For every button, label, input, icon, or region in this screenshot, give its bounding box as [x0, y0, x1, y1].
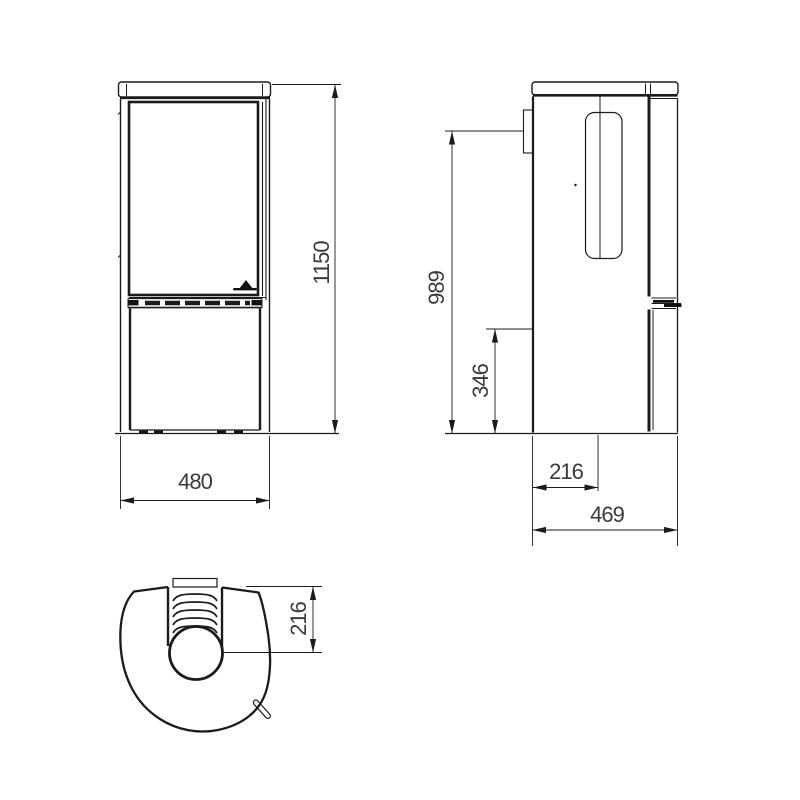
front-top-plate [119, 82, 271, 97]
side-dot-mark [574, 184, 576, 186]
dim-label-front-width: 480 [178, 469, 212, 494]
top-view [120, 579, 271, 732]
front-air-grille [128, 299, 262, 308]
side-flue-stub [524, 110, 534, 153]
arrowhead-left [121, 497, 135, 503]
grille-left-block [129, 300, 139, 305]
dim-label-side-flue-height: 989 [424, 270, 449, 304]
side-top-plate [532, 82, 678, 95]
side-top-plate-ticks [646, 84, 651, 95]
brand-logo-icon [233, 280, 257, 290]
dim-label-side-mid-height: 346 [468, 363, 493, 397]
grille-right-block [252, 300, 262, 305]
arrowhead-down [332, 420, 338, 434]
dim-front-height: 1150 [272, 85, 341, 434]
front-view [115, 82, 339, 434]
dim-side-mid-height: 346 [468, 329, 533, 434]
front-top-plate-ticks [127, 84, 263, 96]
top-flue-collar [170, 627, 223, 680]
dim-label-side-flue-offset: 216 [549, 459, 583, 484]
arrowhead-right [256, 497, 270, 503]
arrowhead-down [449, 420, 455, 434]
side-inset-panel [586, 113, 623, 259]
arrowhead-up [492, 329, 498, 343]
arrowhead-up [332, 85, 338, 99]
dim-top-flue-offset: 216 [224, 587, 322, 653]
dim-side-depth: 469 [533, 436, 678, 546]
arrowhead-right [585, 484, 599, 490]
arrowhead-down [310, 639, 316, 653]
dim-side-flue-offset: 216 [533, 435, 598, 491]
arrowhead-right [664, 527, 678, 533]
top-rear-shield [173, 579, 217, 588]
dim-front-width: 480 [121, 436, 270, 509]
arrowhead-left [533, 484, 547, 490]
front-door-glass [129, 102, 258, 295]
arrowhead-left [533, 527, 547, 533]
arrowhead-up [449, 131, 455, 145]
technical-drawing-page: 1150 480 [0, 0, 800, 800]
front-feet [139, 431, 243, 434]
arrowhead-up [310, 587, 316, 601]
arrowhead-down [492, 420, 498, 434]
dim-label-front-height: 1150 [309, 241, 334, 285]
dim-ext-lines [533, 436, 678, 546]
dim-label-side-depth: 469 [590, 502, 624, 527]
stove-dimension-drawing: 1150 480 [0, 0, 800, 800]
dim-label-top-flue-offset: 216 [286, 601, 311, 635]
